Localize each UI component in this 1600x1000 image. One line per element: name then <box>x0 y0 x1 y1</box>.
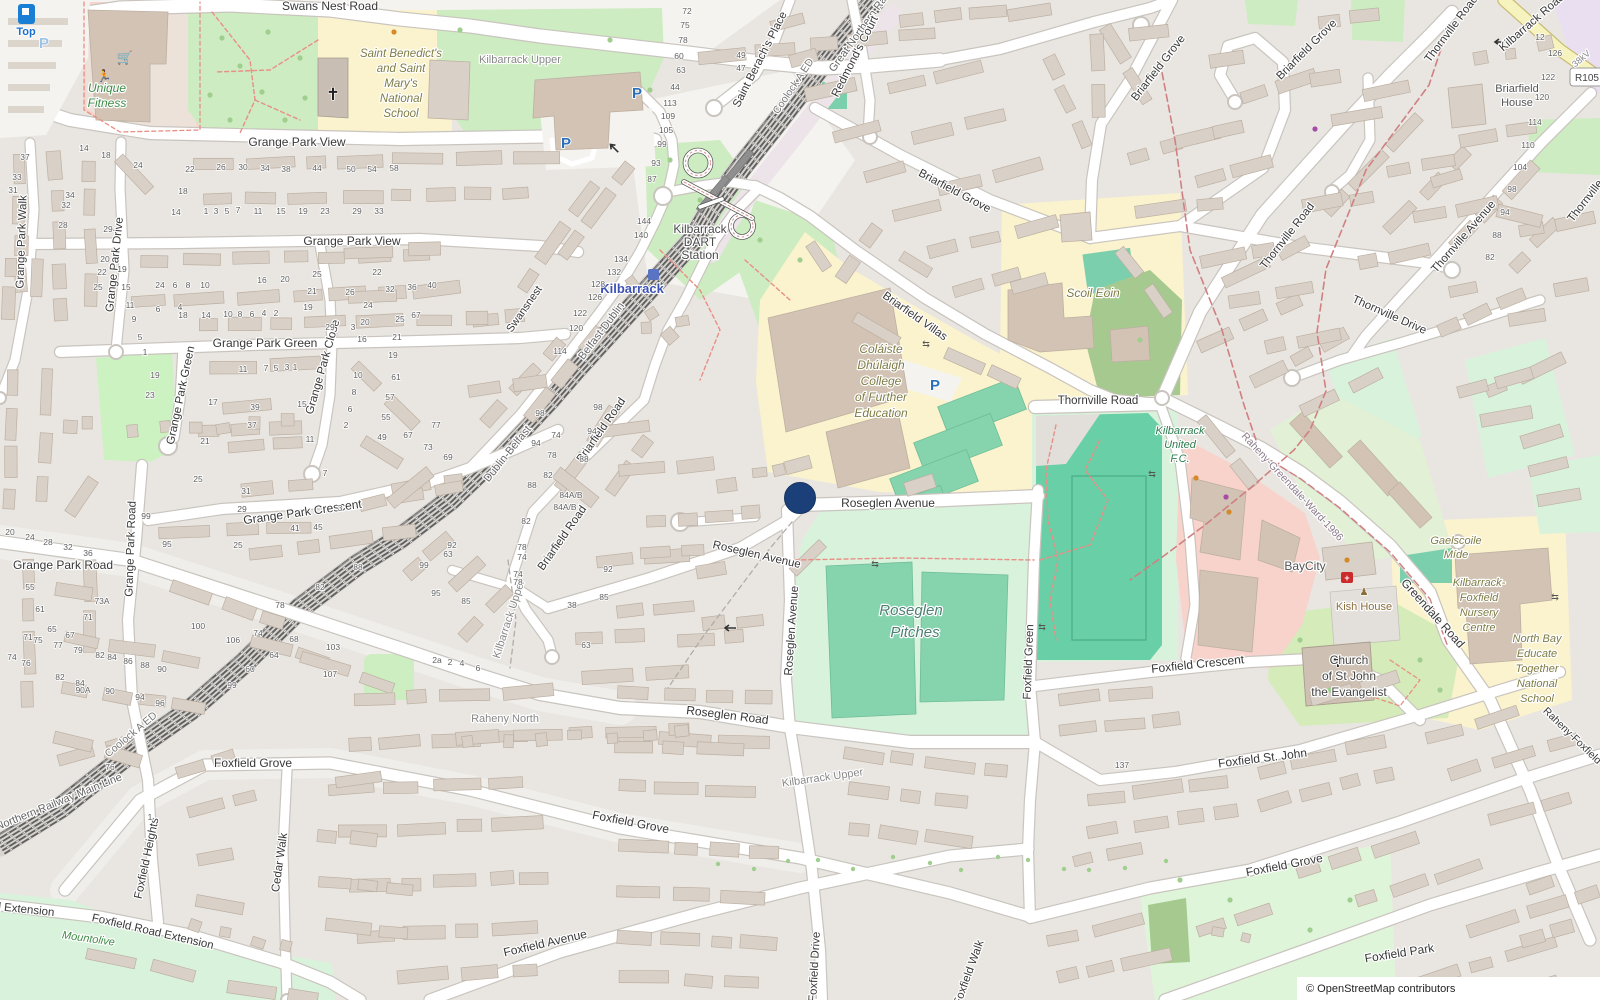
svg-text:32: 32 <box>61 200 71 210</box>
svg-text:Kilbarrack: Kilbarrack <box>1156 425 1205 437</box>
svg-text:United: United <box>1164 439 1197 451</box>
svg-text:1: 1 <box>204 206 209 216</box>
svg-text:137: 137 <box>1115 760 1129 770</box>
svg-text:75: 75 <box>33 635 43 645</box>
svg-text:38: 38 <box>567 600 577 610</box>
svg-text:92: 92 <box>603 564 613 574</box>
svg-text:78: 78 <box>678 35 688 45</box>
svg-text:Top: Top <box>16 26 36 38</box>
svg-text:100: 100 <box>191 621 205 631</box>
svg-text:32: 32 <box>63 542 73 552</box>
svg-text:15: 15 <box>121 282 131 292</box>
svg-text:21: 21 <box>200 436 210 446</box>
svg-text:74: 74 <box>551 430 561 440</box>
svg-text:67: 67 <box>411 310 421 320</box>
svg-text:Grange Park Green: Grange Park Green <box>213 336 318 350</box>
svg-text:10: 10 <box>223 309 233 319</box>
svg-text:33: 33 <box>374 206 384 216</box>
svg-text:25: 25 <box>193 474 203 484</box>
svg-text:61: 61 <box>391 372 401 382</box>
svg-text:78: 78 <box>547 450 557 460</box>
svg-text:Dhúlaigh: Dhúlaigh <box>857 358 905 372</box>
svg-text:Thornville Road: Thornville Road <box>1058 395 1139 407</box>
svg-text:20: 20 <box>100 254 110 264</box>
svg-text:29: 29 <box>325 322 335 332</box>
svg-text:19: 19 <box>298 206 308 216</box>
svg-text:55: 55 <box>381 412 391 422</box>
svg-text:Kilbarrack-: Kilbarrack- <box>1453 577 1506 589</box>
svg-text:⇆: ⇆ <box>922 339 930 349</box>
svg-text:120: 120 <box>569 323 583 333</box>
svg-text:69: 69 <box>443 452 453 462</box>
svg-text:96: 96 <box>155 698 165 708</box>
svg-text:82: 82 <box>95 650 105 660</box>
svg-text:Kilbarrack: Kilbarrack <box>600 281 664 296</box>
svg-text:Kish House: Kish House <box>1336 601 1392 613</box>
svg-text:8: 8 <box>238 309 243 319</box>
svg-text:61: 61 <box>35 604 45 614</box>
svg-text:2a: 2a <box>432 655 442 665</box>
svg-text:Kilbarrack: Kilbarrack <box>673 222 727 236</box>
svg-text:Kilbarrack Upper: Kilbarrack Upper <box>479 54 561 66</box>
svg-text:120: 120 <box>1535 92 1549 102</box>
svg-text:23: 23 <box>320 206 330 216</box>
svg-text:122: 122 <box>1541 72 1555 82</box>
svg-text:18: 18 <box>101 150 111 160</box>
svg-text:84: 84 <box>75 678 85 688</box>
svg-text:24: 24 <box>155 280 165 290</box>
svg-text:6: 6 <box>476 663 481 673</box>
svg-text:+: + <box>1344 573 1349 583</box>
svg-text:14: 14 <box>79 143 89 153</box>
svg-text:98: 98 <box>1507 184 1517 194</box>
svg-text:85: 85 <box>461 596 471 606</box>
svg-text:29: 29 <box>352 206 362 216</box>
svg-text:31: 31 <box>8 185 18 195</box>
svg-text:22: 22 <box>185 164 195 174</box>
svg-text:16: 16 <box>257 275 267 285</box>
svg-text:P: P <box>930 377 940 394</box>
svg-text:2: 2 <box>344 420 349 430</box>
svg-text:1: 1 <box>148 812 153 822</box>
svg-text:Grange Park Road: Grange Park Road <box>13 558 113 572</box>
svg-text:74: 74 <box>517 552 527 562</box>
svg-text:R105: R105 <box>1575 73 1599 84</box>
svg-text:20: 20 <box>5 527 15 537</box>
svg-text:15: 15 <box>297 399 307 409</box>
svg-text:National: National <box>1517 678 1558 690</box>
svg-text:76: 76 <box>105 762 115 772</box>
svg-text:88: 88 <box>140 660 150 670</box>
svg-text:P: P <box>561 135 571 152</box>
svg-text:37: 37 <box>247 420 257 430</box>
svg-text:19: 19 <box>303 302 313 312</box>
svg-text:95: 95 <box>431 588 441 598</box>
svg-text:5: 5 <box>225 206 230 216</box>
svg-text:40: 40 <box>427 280 437 290</box>
svg-text:128: 128 <box>591 279 605 289</box>
svg-text:107: 107 <box>323 669 337 679</box>
svg-text:⇆: ⇆ <box>871 559 879 569</box>
svg-text:Grange Park View: Grange Park View <box>303 234 400 248</box>
svg-text:38: 38 <box>281 164 291 174</box>
svg-text:21: 21 <box>307 286 317 296</box>
svg-text:98: 98 <box>535 408 545 418</box>
svg-text:63: 63 <box>581 640 591 650</box>
svg-text:57: 57 <box>385 392 395 402</box>
svg-text:11: 11 <box>126 300 135 310</box>
svg-text:Scoil Eoin: Scoil Eoin <box>1066 286 1120 300</box>
svg-text:114: 114 <box>553 346 567 356</box>
svg-text:6: 6 <box>250 309 255 319</box>
svg-text:77: 77 <box>53 640 63 650</box>
svg-text:126: 126 <box>588 292 602 302</box>
svg-text:78: 78 <box>517 542 527 552</box>
svg-text:31: 31 <box>241 486 251 496</box>
svg-text:88: 88 <box>527 480 537 490</box>
svg-text:74: 74 <box>7 652 17 662</box>
svg-text:♟: ♟ <box>1360 587 1369 598</box>
svg-text:16: 16 <box>357 334 367 344</box>
svg-text:36: 36 <box>83 548 93 558</box>
svg-text:49: 49 <box>377 432 387 442</box>
svg-text:Roseglen: Roseglen <box>879 602 942 619</box>
svg-text:82: 82 <box>55 672 65 682</box>
svg-text:26: 26 <box>345 287 355 297</box>
svg-text:90: 90 <box>105 686 115 696</box>
svg-text:87: 87 <box>647 174 657 184</box>
svg-text:✝: ✝ <box>326 85 340 104</box>
svg-text:82: 82 <box>543 470 553 480</box>
svg-text:44: 44 <box>670 82 680 92</box>
svg-text:126: 126 <box>1548 48 1562 58</box>
svg-text:47: 47 <box>736 63 746 73</box>
svg-text:60: 60 <box>674 51 684 61</box>
svg-text:10: 10 <box>353 370 363 380</box>
svg-text:6: 6 <box>348 404 353 414</box>
svg-text:94: 94 <box>587 426 597 436</box>
svg-text:39: 39 <box>250 402 260 412</box>
svg-text:6: 6 <box>173 280 178 290</box>
svg-text:64: 64 <box>269 650 279 660</box>
svg-text:50: 50 <box>346 164 356 174</box>
svg-text:99: 99 <box>227 680 237 690</box>
svg-text:19: 19 <box>150 370 160 380</box>
svg-text:94: 94 <box>1500 207 1510 217</box>
svg-text:Unique: Unique <box>88 81 126 95</box>
svg-text:of Further: of Further <box>855 390 908 404</box>
svg-text:71: 71 <box>83 612 93 622</box>
svg-text:63: 63 <box>443 549 453 559</box>
svg-text:12: 12 <box>1535 32 1545 42</box>
svg-text:78: 78 <box>513 577 523 587</box>
svg-text:3: 3 <box>214 206 219 216</box>
svg-text:24: 24 <box>363 300 373 310</box>
svg-text:114: 114 <box>1528 117 1542 127</box>
svg-text:10: 10 <box>200 280 210 290</box>
svg-text:14: 14 <box>201 310 211 320</box>
svg-text:99: 99 <box>141 511 151 521</box>
svg-text:26: 26 <box>216 162 226 172</box>
svg-text:25: 25 <box>93 282 103 292</box>
svg-text:Míde: Míde <box>1444 549 1468 561</box>
svg-text:23: 23 <box>145 390 155 400</box>
svg-text:88: 88 <box>353 562 363 572</box>
svg-text:School: School <box>1520 693 1554 705</box>
svg-text:33: 33 <box>12 172 22 182</box>
svg-text:Station: Station <box>681 248 718 262</box>
svg-text:37: 37 <box>20 152 30 162</box>
svg-text:134: 134 <box>614 254 628 264</box>
svg-text:Gaelscoile: Gaelscoile <box>1430 535 1481 547</box>
svg-text:73: 73 <box>423 442 433 452</box>
svg-text:20: 20 <box>360 317 370 327</box>
svg-text:20: 20 <box>280 274 290 284</box>
svg-text:113: 113 <box>663 98 677 108</box>
svg-text:DART: DART <box>684 235 717 249</box>
svg-text:79: 79 <box>73 645 83 655</box>
svg-text:132: 132 <box>607 267 621 277</box>
svg-text:110: 110 <box>1521 140 1535 150</box>
svg-text:11: 11 <box>306 434 315 444</box>
svg-text:3: 3 <box>351 322 356 332</box>
svg-text:3: 3 <box>285 362 290 372</box>
svg-text:3: 3 <box>338 503 343 513</box>
svg-text:76: 76 <box>21 658 31 668</box>
svg-text:25: 25 <box>312 269 322 279</box>
svg-text:4: 4 <box>262 308 267 318</box>
svg-text:19: 19 <box>117 264 127 274</box>
svg-text:78: 78 <box>275 600 285 610</box>
svg-text:National: National <box>380 93 423 105</box>
svg-text:144: 144 <box>637 216 651 226</box>
svg-text:House: House <box>1501 97 1533 109</box>
svg-text:82: 82 <box>521 516 531 526</box>
svg-text:34: 34 <box>260 163 270 173</box>
svg-text:55: 55 <box>25 582 35 592</box>
svg-text:72: 72 <box>682 6 692 16</box>
svg-text:School: School <box>383 108 419 120</box>
svg-text:⇆: ⇆ <box>1038 622 1046 632</box>
svg-text:73A: 73A <box>94 596 109 606</box>
svg-text:41: 41 <box>290 523 300 533</box>
svg-text:44: 44 <box>312 163 322 173</box>
svg-text:94: 94 <box>531 438 541 448</box>
svg-text:82: 82 <box>1485 252 1495 262</box>
svg-text:34: 34 <box>65 190 75 200</box>
svg-text:84: 84 <box>107 652 117 662</box>
svg-text:8: 8 <box>186 280 191 290</box>
svg-text:11: 11 <box>239 364 248 374</box>
svg-text:84A/B: 84A/B <box>559 490 582 500</box>
svg-text:Church: Church <box>1330 653 1369 667</box>
svg-text:Mary's: Mary's <box>384 78 418 90</box>
svg-text:of St John: of St John <box>1322 669 1376 683</box>
svg-text:⇆: ⇆ <box>1148 469 1156 479</box>
svg-text:60: 60 <box>245 664 255 674</box>
svg-text:90: 90 <box>157 664 167 674</box>
svg-text:Swans Nest Road: Swans Nest Road <box>282 0 378 13</box>
svg-text:58: 58 <box>389 163 399 173</box>
svg-text:18: 18 <box>178 186 188 196</box>
svg-text:9: 9 <box>132 314 137 324</box>
svg-text:21: 21 <box>392 332 402 342</box>
svg-text:Grange Park View: Grange Park View <box>248 135 345 149</box>
svg-text:88: 88 <box>579 454 589 464</box>
svg-text:2: 2 <box>274 308 279 318</box>
svg-text:Raheny North: Raheny North <box>471 713 539 725</box>
svg-text:F.C.: F.C. <box>1170 453 1189 465</box>
svg-text:Education: Education <box>854 406 908 420</box>
svg-text:5: 5 <box>138 332 143 342</box>
svg-text:49: 49 <box>736 50 746 60</box>
svg-text:103: 103 <box>326 642 340 652</box>
svg-text:29: 29 <box>237 504 247 514</box>
svg-text:🛒: 🛒 <box>117 50 133 65</box>
svg-text:22: 22 <box>97 267 107 277</box>
svg-text:30: 30 <box>238 162 248 172</box>
svg-text:8: 8 <box>352 387 357 397</box>
svg-text:1: 1 <box>143 347 148 357</box>
svg-text:28: 28 <box>58 220 68 230</box>
svg-text:94: 94 <box>135 692 145 702</box>
svg-text:Foxfield: Foxfield <box>1460 592 1499 604</box>
svg-text:Nursery: Nursery <box>1460 607 1500 619</box>
svg-text:7: 7 <box>264 363 269 373</box>
svg-text:P: P <box>632 85 642 102</box>
svg-text:32: 32 <box>385 284 395 294</box>
svg-text:Briarfield: Briarfield <box>1495 83 1538 95</box>
svg-text:67: 67 <box>403 430 413 440</box>
svg-text:98: 98 <box>593 402 603 412</box>
svg-text:82: 82 <box>315 582 325 592</box>
svg-text:Together: Together <box>1515 663 1559 675</box>
svg-text:28: 28 <box>43 537 53 547</box>
svg-text:Fitness: Fitness <box>88 96 127 110</box>
svg-text:36: 36 <box>407 282 417 292</box>
svg-text:Educate: Educate <box>1517 648 1557 660</box>
svg-text:BayCity: BayCity <box>1284 559 1325 573</box>
svg-text:25: 25 <box>233 540 243 550</box>
svg-text:College: College <box>861 374 902 388</box>
svg-text:68: 68 <box>289 634 299 644</box>
svg-text:25: 25 <box>395 314 405 324</box>
svg-text:75: 75 <box>680 20 690 30</box>
svg-text:86: 86 <box>123 656 133 666</box>
svg-text:7: 7 <box>323 468 328 478</box>
svg-text:92: 92 <box>447 540 457 550</box>
svg-text:6: 6 <box>156 304 161 314</box>
svg-text:5: 5 <box>274 363 279 373</box>
svg-text:99: 99 <box>657 139 667 149</box>
svg-text:Foxfield Grove: Foxfield Grove <box>214 756 292 770</box>
svg-text:15: 15 <box>276 206 286 216</box>
svg-text:106: 106 <box>226 635 240 645</box>
svg-text:22: 22 <box>372 267 382 277</box>
svg-text:the Evangelist: the Evangelist <box>1311 685 1387 699</box>
svg-text:Roseglen Avenue: Roseglen Avenue <box>841 496 935 510</box>
svg-text:140: 140 <box>634 230 648 240</box>
svg-text:95: 95 <box>162 539 172 549</box>
svg-text:© OpenStreetMap contributors: © OpenStreetMap contributors <box>1306 983 1456 995</box>
svg-text:Pitches: Pitches <box>890 624 940 641</box>
svg-text:71: 71 <box>23 632 33 642</box>
svg-text:11: 11 <box>254 206 263 216</box>
svg-text:77: 77 <box>431 420 441 430</box>
svg-text:105: 105 <box>659 125 673 135</box>
svg-text:2: 2 <box>448 657 453 667</box>
svg-text:14: 14 <box>171 207 181 217</box>
svg-text:19: 19 <box>388 350 398 360</box>
svg-text:17: 17 <box>208 397 218 407</box>
svg-text:63: 63 <box>676 65 686 75</box>
svg-text:109: 109 <box>661 111 675 121</box>
svg-text:122: 122 <box>573 308 587 318</box>
svg-text:93: 93 <box>651 158 661 168</box>
svg-text:24: 24 <box>133 160 143 170</box>
svg-text:85: 85 <box>599 592 609 602</box>
svg-text:18: 18 <box>178 310 188 320</box>
svg-text:65: 65 <box>47 624 57 634</box>
svg-text:Saint Benedict's: Saint Benedict's <box>360 48 442 60</box>
svg-text:Coláiste: Coláiste <box>859 342 903 356</box>
svg-text:⇆: ⇆ <box>1551 592 1559 602</box>
svg-text:104: 104 <box>1513 162 1527 172</box>
svg-text:74: 74 <box>253 628 263 638</box>
svg-text:29: 29 <box>103 224 113 234</box>
svg-text:67: 67 <box>65 630 75 640</box>
svg-text:99: 99 <box>419 560 429 570</box>
svg-text:45: 45 <box>313 522 323 532</box>
svg-text:88: 88 <box>1492 230 1502 240</box>
svg-text:Centre: Centre <box>1462 622 1495 634</box>
svg-text:54: 54 <box>367 164 377 174</box>
svg-text:84A/B: 84A/B <box>553 502 576 512</box>
svg-text:P: P <box>39 35 49 52</box>
svg-text:24: 24 <box>25 532 35 542</box>
svg-text:7: 7 <box>236 205 241 215</box>
svg-text:and Saint: and Saint <box>377 63 426 75</box>
svg-text:North Bay: North Bay <box>1513 633 1563 645</box>
svg-text:4: 4 <box>460 658 465 668</box>
svg-text:1: 1 <box>293 362 298 372</box>
